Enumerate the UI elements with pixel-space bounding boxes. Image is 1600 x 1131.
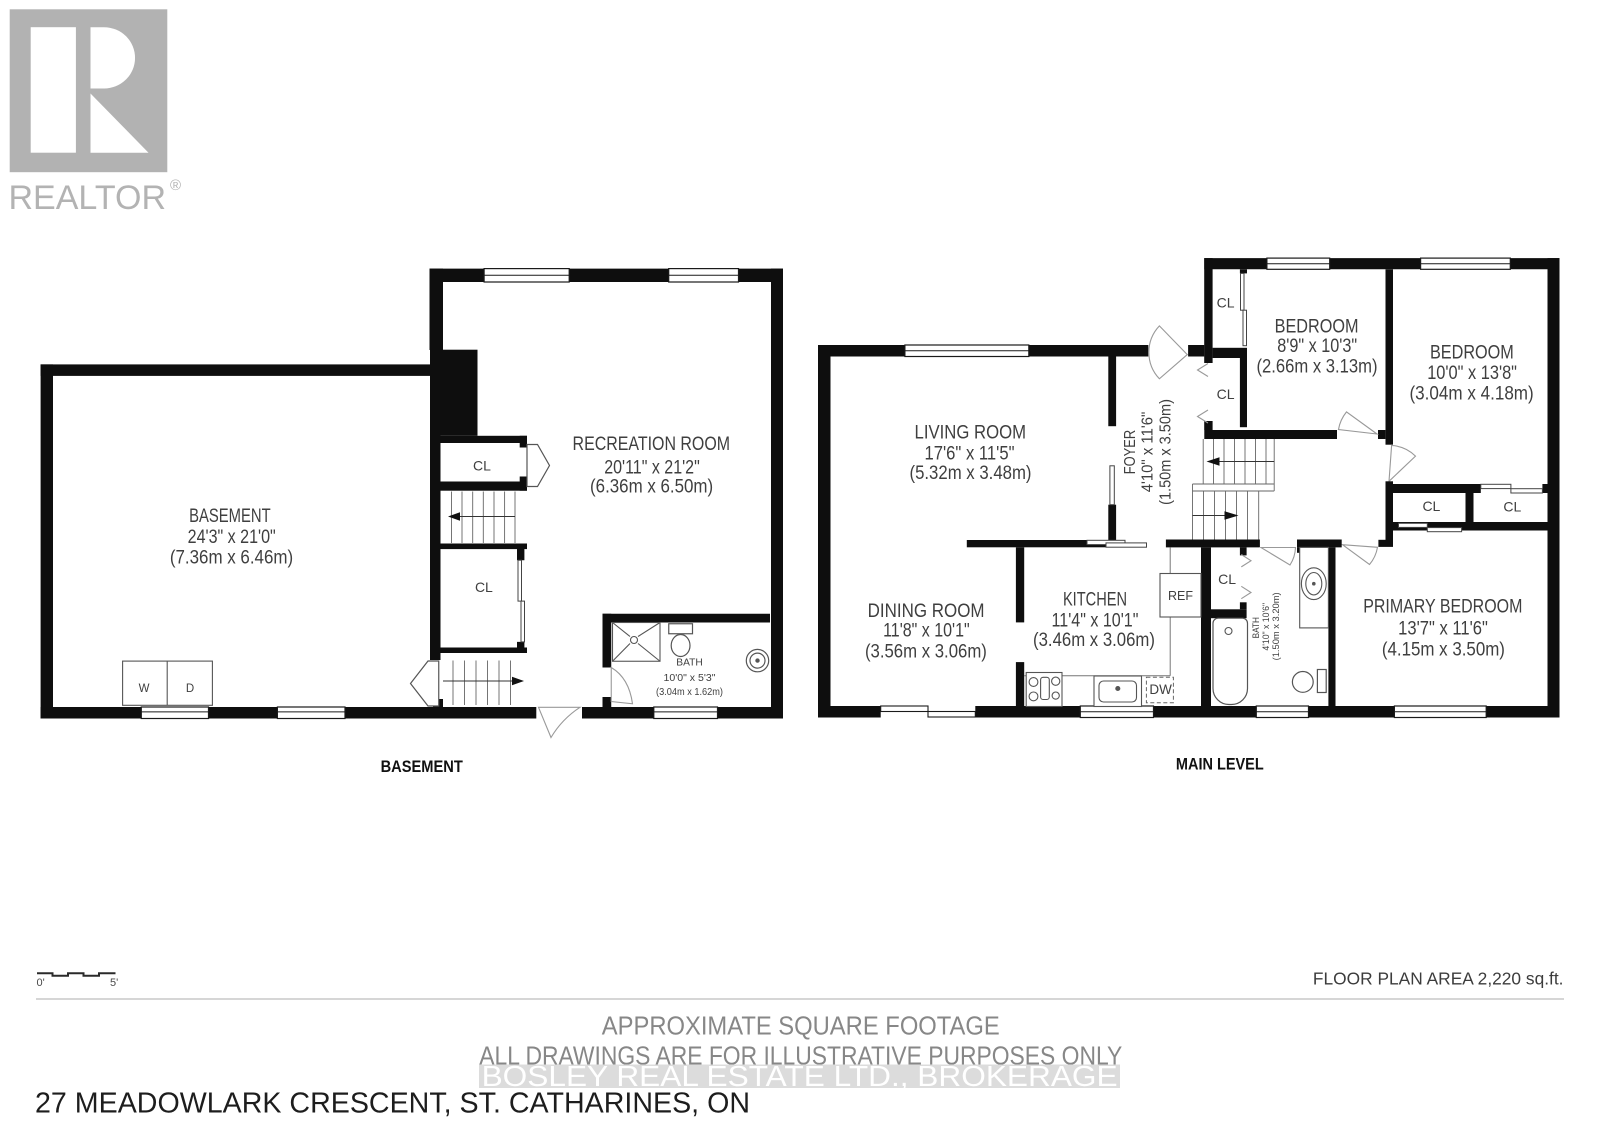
svg-text:REF: REF	[1168, 589, 1193, 603]
svg-text:(6.36m x 6.50m): (6.36m x 6.50m)	[590, 477, 713, 498]
svg-text:BASEMENT: BASEMENT	[189, 506, 271, 527]
svg-text:FLOOR PLAN AREA 2,220 sq.ft.: FLOOR PLAN AREA 2,220 sq.ft.	[1313, 969, 1564, 989]
svg-text:LIVING ROOM: LIVING ROOM	[915, 423, 1027, 444]
svg-text:4'10" x 10'6": 4'10" x 10'6"	[1261, 603, 1271, 651]
svg-text:(3.04m x 1.62m): (3.04m x 1.62m)	[656, 687, 723, 698]
svg-text:D: D	[186, 683, 194, 695]
svg-text:BATH: BATH	[676, 657, 703, 669]
svg-text:RECREATION ROOM: RECREATION ROOM	[573, 434, 731, 455]
svg-text:(3.46m x 3.06m): (3.46m x 3.06m)	[1033, 630, 1155, 651]
svg-text:PRIMARY BEDROOM: PRIMARY BEDROOM	[1363, 596, 1522, 617]
svg-text:(1.50m x 3.20m): (1.50m x 3.20m)	[1271, 592, 1281, 660]
svg-text:(5.32m x 3.48m): (5.32m x 3.48m)	[910, 463, 1032, 484]
svg-text:(1.50m x 3.50m): (1.50m x 3.50m)	[1158, 399, 1175, 505]
svg-text:DINING ROOM: DINING ROOM	[868, 601, 985, 622]
svg-text:(3.04m x 4.18m): (3.04m x 4.18m)	[1410, 384, 1534, 405]
svg-text:17'6" x 11'5": 17'6" x 11'5"	[925, 444, 1015, 465]
svg-text:8'9" x 10'3": 8'9" x 10'3"	[1277, 336, 1357, 357]
svg-text:W: W	[139, 683, 150, 695]
svg-text:BEDROOM: BEDROOM	[1275, 316, 1359, 337]
svg-text:10'0" x 13'8": 10'0" x 13'8"	[1427, 363, 1517, 384]
svg-text:BEDROOM: BEDROOM	[1430, 342, 1514, 363]
svg-text:11'8" x 10'1": 11'8" x 10'1"	[883, 621, 970, 642]
svg-text:BASEMENT: BASEMENT	[381, 757, 464, 776]
svg-text:(3.56m x 3.06m): (3.56m x 3.06m)	[865, 642, 987, 663]
svg-text:CL: CL	[1422, 498, 1440, 514]
svg-text:CL: CL	[1503, 499, 1521, 515]
svg-text:13'7" x 11'6": 13'7" x 11'6"	[1398, 618, 1488, 639]
svg-text:4'10" x 11'6": 4'10" x 11'6"	[1140, 412, 1157, 493]
svg-text:27 MEADOWLARK CRESCENT, ST. CA: 27 MEADOWLARK CRESCENT, ST. CATHARINES, …	[35, 1088, 750, 1120]
svg-text:CL: CL	[475, 579, 493, 595]
svg-text:0': 0'	[37, 977, 45, 989]
svg-text:KITCHEN: KITCHEN	[1063, 590, 1127, 611]
svg-text:(7.36m x 6.46m): (7.36m x 6.46m)	[170, 547, 293, 568]
svg-text:MAIN LEVEL: MAIN LEVEL	[1176, 754, 1264, 773]
svg-text:(4.15m x 3.50m): (4.15m x 3.50m)	[1382, 640, 1505, 661]
svg-text:(2.66m x 3.13m): (2.66m x 3.13m)	[1256, 356, 1377, 377]
svg-text:REALTOR: REALTOR	[9, 179, 167, 217]
svg-text:5': 5'	[110, 977, 118, 989]
svg-text:CL: CL	[1217, 386, 1235, 402]
svg-text:11'4" x 10'1": 11'4" x 10'1"	[1052, 610, 1139, 631]
svg-text:FOYER: FOYER	[1122, 430, 1139, 475]
svg-text:CL: CL	[473, 457, 491, 473]
svg-text:10'0" x 5'3": 10'0" x 5'3"	[664, 673, 716, 684]
svg-text:24'3" x 21'0": 24'3" x 21'0"	[188, 527, 276, 548]
svg-text:®: ®	[170, 177, 181, 194]
svg-text:DW: DW	[1149, 682, 1172, 697]
svg-text:CL: CL	[1218, 571, 1236, 587]
svg-text:APPROXIMATE SQUARE FOOTAGE: APPROXIMATE SQUARE FOOTAGE	[602, 1013, 1000, 1041]
svg-text:CL: CL	[1217, 295, 1235, 311]
